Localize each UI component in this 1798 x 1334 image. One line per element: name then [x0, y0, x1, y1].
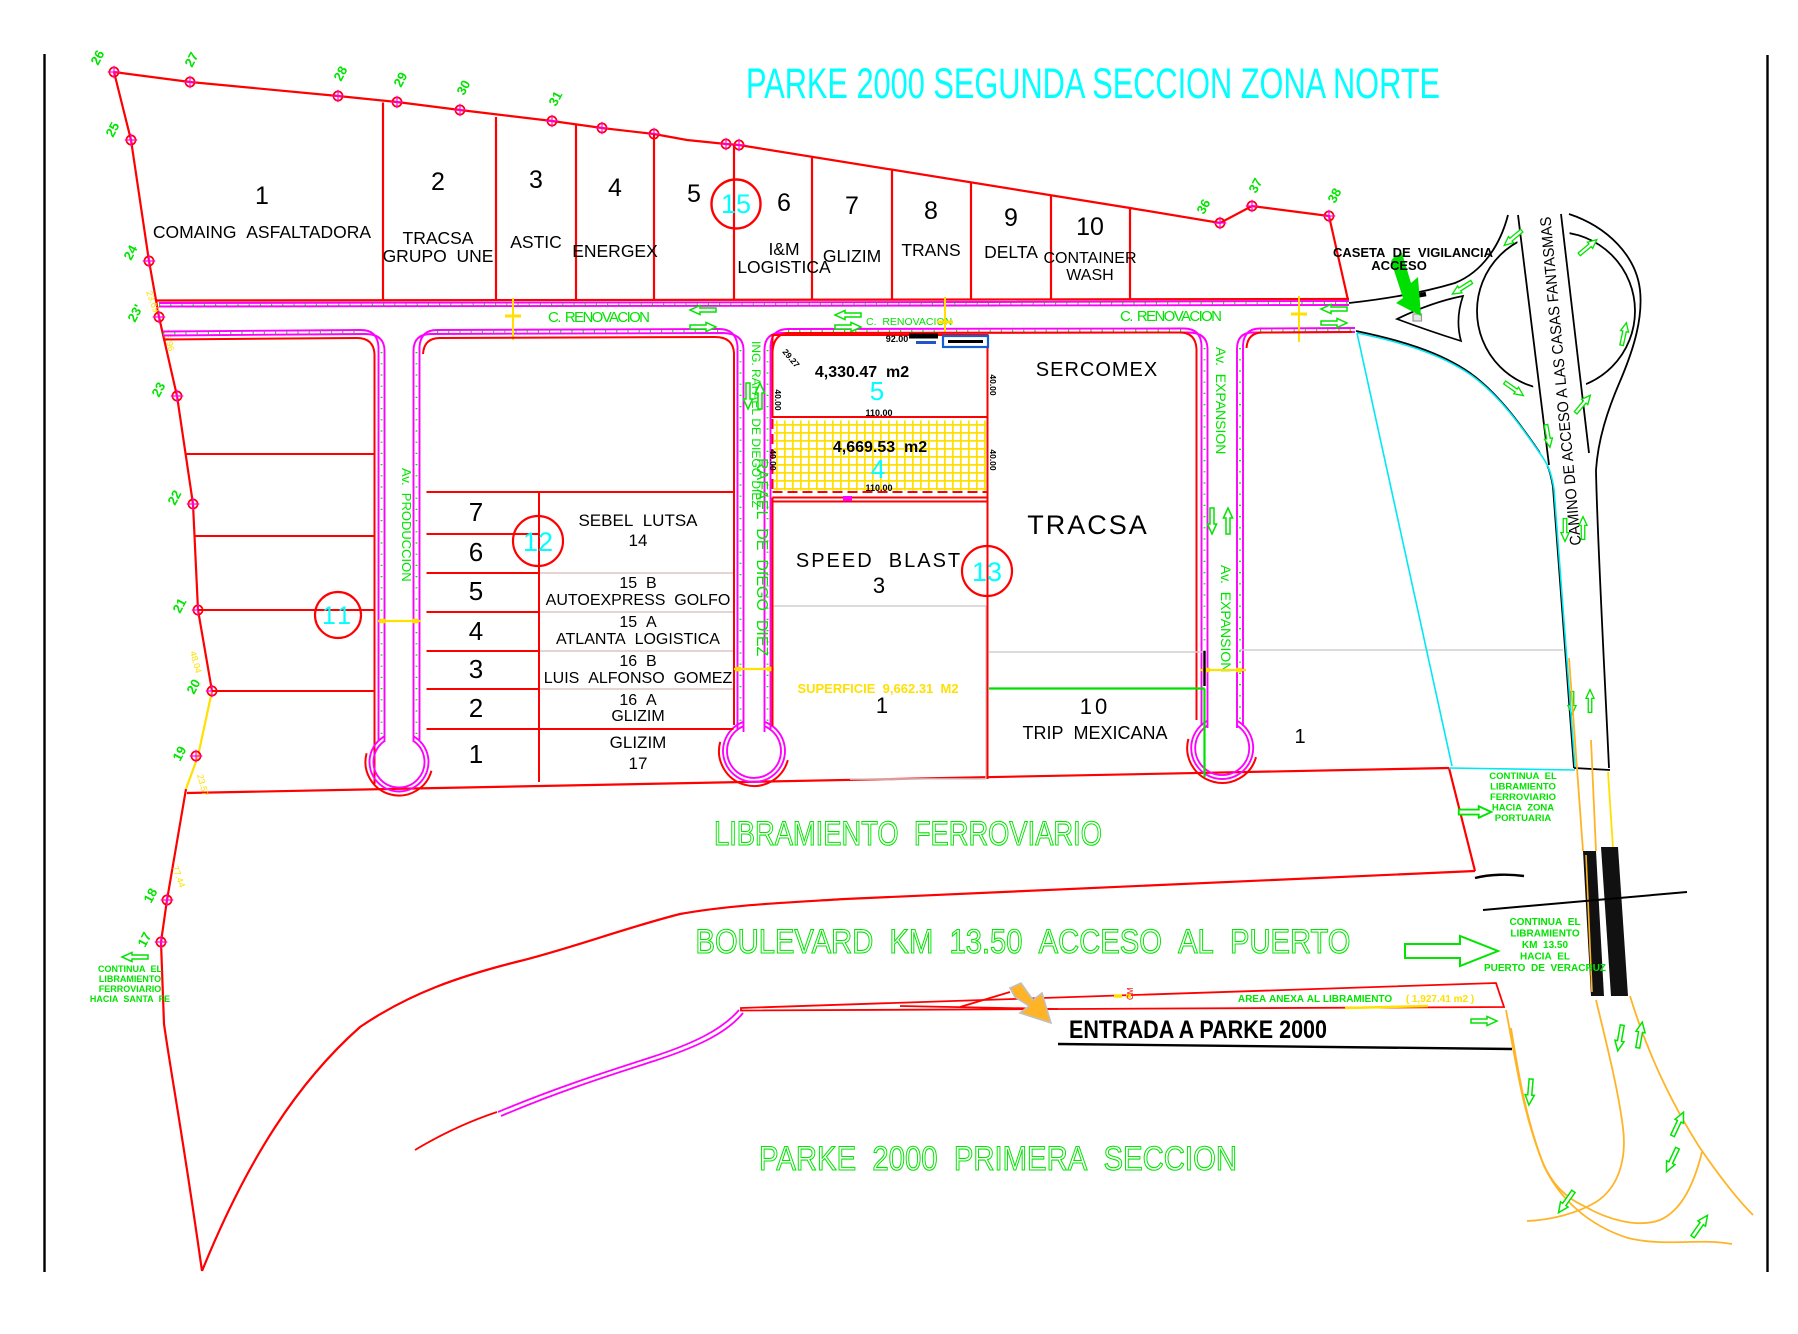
- svg-text:11: 11: [322, 602, 354, 630]
- svg-text:15 A: 15 A: [619, 614, 657, 631]
- svg-text:CONTINUA EL: CONTINUA EL: [98, 964, 163, 974]
- svg-text:GLIZIM: GLIZIM: [823, 246, 881, 266]
- svg-text:4: 4: [608, 174, 622, 202]
- svg-text:WASH: WASH: [1066, 267, 1113, 284]
- svg-text:KM 13.50: KM 13.50: [1522, 940, 1569, 951]
- svg-text:15: 15: [721, 189, 751, 219]
- svg-text:HACIA SANTA FE: HACIA SANTA FE: [90, 994, 170, 1004]
- svg-text:12: 12: [523, 527, 553, 557]
- svg-text:TRANS: TRANS: [901, 240, 960, 260]
- svg-text:10: 10: [1080, 694, 1110, 719]
- svg-text:6: 6: [777, 189, 791, 217]
- svg-text:ENERGEX: ENERGEX: [572, 241, 658, 261]
- svg-text:3: 3: [529, 166, 543, 194]
- svg-text:LOGISTICA: LOGISTICA: [737, 257, 831, 277]
- svg-text:6: 6: [469, 537, 483, 567]
- svg-text:CONTINUA EL: CONTINUA EL: [1509, 917, 1580, 928]
- svg-text:3: 3: [873, 573, 885, 598]
- svg-text:10: 10: [1076, 213, 1104, 241]
- svg-text:BOULEVARD KM 13.50 ACCESO: BOULEVARD KM 13.50 ACCESO AL PUERTO: [696, 923, 1351, 961]
- svg-text:ACCESO: ACCESO: [1371, 258, 1427, 273]
- svg-text:40.00: 40.00: [988, 374, 998, 396]
- svg-text:TRIP MEXICANA: TRIP MEXICANA: [1022, 723, 1167, 743]
- svg-text:5: 5: [870, 376, 884, 406]
- svg-text:CONTAINER: CONTAINER: [1043, 250, 1136, 267]
- svg-text:SERCOMEX: SERCOMEX: [1036, 359, 1158, 381]
- svg-text:40.00: 40.00: [768, 449, 778, 471]
- svg-text:GRUPO UNE: GRUPO UNE: [383, 246, 494, 266]
- svg-text:40.00: 40.00: [988, 449, 998, 471]
- svg-text:1: 1: [255, 182, 269, 210]
- svg-text:40.00: 40.00: [773, 389, 783, 411]
- svg-text:16 B: 16 B: [619, 653, 656, 670]
- svg-text:C. RENOVACION: C. RENOVACION: [548, 309, 650, 326]
- svg-text:SEBEL LUTSA: SEBEL LUTSA: [578, 511, 698, 530]
- svg-text:1: 1: [469, 739, 483, 769]
- svg-text:9: 9: [1004, 204, 1018, 232]
- svg-text:GLIZIM: GLIZIM: [610, 733, 667, 752]
- svg-text:CONTINUA EL: CONTINUA EL: [1489, 771, 1557, 782]
- svg-text:FERROVIARIO: FERROVIARIO: [99, 984, 162, 994]
- svg-text:2: 2: [469, 693, 483, 723]
- svg-text:16 A: 16 A: [619, 692, 657, 709]
- svg-text:SPEED BLAST: SPEED BLAST: [796, 550, 962, 572]
- svg-text:110.00: 110.00: [865, 483, 892, 493]
- svg-text:7: 7: [469, 497, 483, 527]
- svg-text:PARKE 2000 SEGUNDA SECCION ZON: PARKE 2000 SEGUNDA SECCION ZONA NORTE: [746, 60, 1440, 108]
- svg-text:LUIS ALFONSO GOMEZ: LUIS ALFONSO GOMEZ: [544, 670, 733, 687]
- svg-text:4: 4: [469, 616, 483, 646]
- svg-text:15 B: 15 B: [619, 575, 656, 592]
- svg-text:1: 1: [876, 693, 888, 718]
- svg-text:PORTUARIA: PORTUARIA: [1495, 813, 1552, 824]
- svg-text:ENTRADA A PARKE 2000: ENTRADA A PARKE 2000: [1069, 1016, 1327, 1044]
- svg-text:ATLANTA LOGISTICA: ATLANTA LOGISTICA: [556, 631, 720, 648]
- svg-text:COMAING ASFALTADORA: COMAING ASFALTADORA: [153, 222, 371, 242]
- svg-text:17: 17: [629, 754, 648, 773]
- svg-text:Av. PRODUCCION: Av. PRODUCCION: [399, 468, 414, 582]
- svg-text:2: 2: [431, 168, 445, 196]
- svg-text:8: 8: [924, 197, 938, 225]
- svg-text:AREA ANEXA AL LIBRAMIENTO: AREA ANEXA AL LIBRAMIENTO: [1238, 994, 1392, 1005]
- svg-text:5: 5: [469, 576, 483, 606]
- svg-text:I&M: I&M: [768, 239, 799, 259]
- svg-text:TRACSA: TRACSA: [1027, 510, 1149, 540]
- svg-text:LIBRAMIENTO: LIBRAMIENTO: [1490, 782, 1556, 793]
- svg-text:7: 7: [845, 192, 859, 220]
- svg-text:HACIA ZONA: HACIA ZONA: [1492, 803, 1554, 814]
- svg-text:DELTA: DELTA: [984, 242, 1038, 262]
- svg-text:14: 14: [629, 531, 648, 550]
- svg-text:TRACSA: TRACSA: [403, 228, 474, 248]
- svg-text:FERROVIARIO: FERROVIARIO: [1490, 792, 1556, 803]
- svg-text:CM: CM: [1126, 987, 1135, 1000]
- svg-text:Av. EXPANSION: Av. EXPANSION: [1218, 565, 1234, 672]
- svg-text:C. RENOVACION: C. RENOVACION: [1120, 308, 1222, 325]
- svg-text:110.00: 110.00: [865, 408, 892, 418]
- svg-text:GLIZIM: GLIZIM: [611, 708, 664, 725]
- svg-text:Av. EXPANSION: Av. EXPANSION: [1213, 347, 1229, 454]
- svg-text:1: 1: [1294, 726, 1305, 748]
- svg-text:5: 5: [687, 180, 701, 208]
- svg-text:LIBRAMIENTO FERROVIARIO: LIBRAMIENTO FERROVIARIO: [714, 815, 1102, 853]
- svg-text:4: 4: [871, 454, 885, 484]
- svg-text:PUERTO DE VERACRUZ: PUERTO DE VERACRUZ: [1484, 963, 1606, 974]
- svg-text:4,330.47 m2: 4,330.47 m2: [815, 364, 909, 381]
- svg-text:3: 3: [469, 654, 483, 684]
- svg-text:13: 13: [972, 557, 1002, 587]
- svg-text:RAFAEL DE DIEGO DIEZ: RAFAEL DE DIEGO DIEZ: [753, 458, 770, 656]
- svg-text:HACIA EL: HACIA EL: [1520, 952, 1570, 963]
- svg-text:LIBRAMIENTO: LIBRAMIENTO: [1510, 929, 1579, 940]
- svg-text:LIBRAMIENTO: LIBRAMIENTO: [99, 974, 161, 984]
- svg-text:( 1,927.41 m2 ): ( 1,927.41 m2 ): [1406, 994, 1474, 1005]
- svg-text:92.00: 92.00: [886, 334, 909, 344]
- svg-text:PARKE 2000 PRIMERA SECCION: PARKE 2000 PRIMERA SECCION: [759, 1140, 1237, 1178]
- svg-text:ASTIC: ASTIC: [510, 232, 562, 252]
- svg-text:AUTOEXPRESS GOLFO: AUTOEXPRESS GOLFO: [546, 592, 731, 609]
